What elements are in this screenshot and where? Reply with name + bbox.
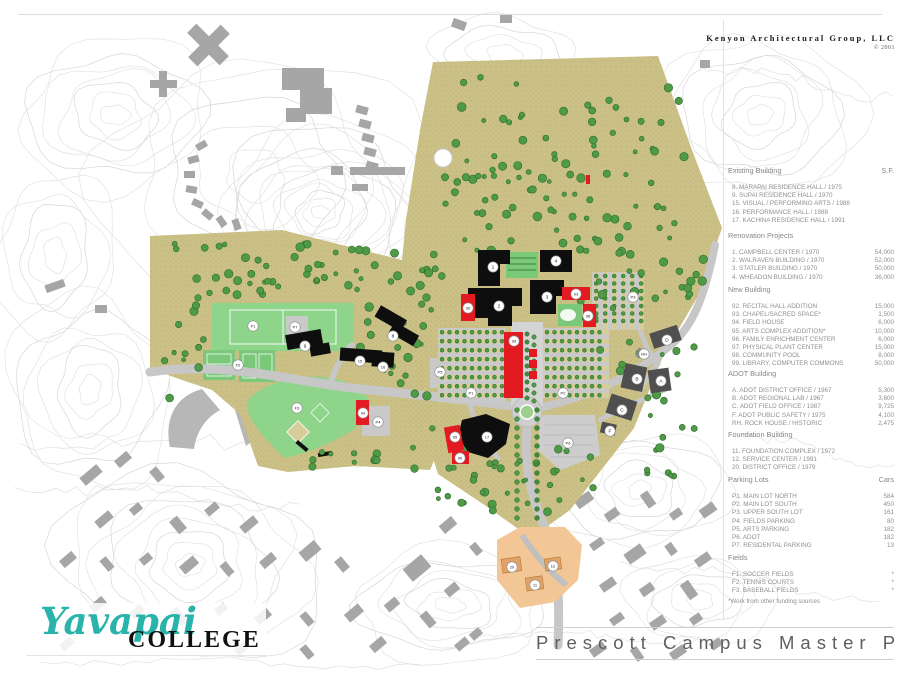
item-label: P2. MAIN LOT SOUTH [728, 501, 797, 509]
item-value: 4,100 [878, 412, 894, 420]
legend-item: P1. MAIN LOT NORTH584 [728, 493, 894, 501]
contour-line [700, 63, 892, 103]
parking-tree [575, 393, 579, 397]
allee-tree [535, 444, 540, 449]
legend-footnote: *Work from other funding sources [728, 598, 820, 605]
parking-tree [639, 319, 643, 323]
tree [224, 269, 233, 278]
tree [319, 449, 324, 454]
legend-item: F2. TENNIS COURTS* [728, 579, 894, 587]
allee-tree [525, 348, 529, 352]
parking-tree [630, 274, 634, 278]
tree [597, 346, 604, 353]
parking-tree [621, 297, 625, 301]
legend-item: 12. SERVICE CENTER / 1991 [728, 456, 894, 464]
parking-tree [545, 339, 549, 343]
parking-tree [463, 330, 467, 334]
city-building [640, 490, 657, 508]
tree [684, 284, 692, 292]
tree [389, 371, 394, 376]
parking-tree [553, 339, 557, 343]
tree [451, 189, 458, 196]
item-label: 12. SERVICE CENTER / 1991 [728, 456, 817, 464]
parking-tree [603, 282, 607, 286]
parking-tree [612, 319, 616, 323]
tree [639, 136, 644, 141]
contour-line [18, 39, 201, 203]
legend-section-adot: ADOT Building A. ADOT DISTRICT OFFICE / … [728, 369, 894, 428]
parking-tree [545, 366, 549, 370]
tree [182, 351, 188, 357]
contour-line [703, 55, 823, 170]
parking-tree [612, 282, 616, 286]
item-label: 15. VISUAL / PERFORMING ARTS / 1988 [728, 200, 850, 208]
city-building [358, 119, 372, 130]
item-label: F3. BASEBALL FIELDS [728, 587, 799, 595]
parking-tree [603, 319, 607, 323]
parking-tree [470, 348, 474, 352]
parking-tree [630, 312, 634, 316]
tree [430, 251, 437, 258]
legend-item: 94. FIELD HOUSE6,000 [728, 319, 894, 327]
allee-tree [525, 364, 529, 368]
tree [314, 277, 319, 282]
tree [648, 413, 652, 417]
parking-tree [485, 366, 489, 370]
tree [255, 257, 261, 263]
tree [656, 444, 665, 453]
map-label-12: 12 [551, 564, 556, 569]
parking-tree [575, 384, 579, 388]
map-label-1: 1 [492, 265, 495, 271]
title-block: Prescott Campus Master Plan [536, 627, 894, 660]
hill-marker [586, 175, 590, 184]
allee-tree [515, 462, 520, 467]
parking-tree [545, 384, 549, 388]
map-label-94: 94 [361, 411, 366, 416]
roundabout-island [520, 405, 534, 419]
tree [562, 192, 567, 197]
legend-section-header: Renovation Projects [728, 231, 894, 240]
legend-item: P6. ADOT182 [728, 534, 894, 542]
tree [657, 225, 663, 231]
legend-item: B. ADOT REGIONAL LAB / 19673,600 [728, 395, 894, 403]
map-label-P1: P1 [469, 391, 475, 396]
tree [529, 186, 536, 193]
tree [526, 170, 531, 175]
tree [482, 118, 486, 122]
tree [492, 465, 496, 469]
section-title: Foundation Building [728, 430, 793, 439]
city-building [419, 610, 436, 628]
tree [611, 215, 619, 223]
legend-item: P5. ARTS PARKING182 [728, 526, 894, 534]
item-label: F2. TENNIS COURTS [728, 579, 794, 587]
allee-tree [515, 507, 520, 512]
tree [648, 180, 654, 186]
contour-line [57, 345, 121, 438]
parking-tree [553, 357, 557, 361]
city-building [299, 611, 314, 627]
tree [234, 277, 242, 285]
tree [626, 250, 634, 258]
legend-item: 17. KACHINA RESIDENCE HALL / 1991 [728, 217, 894, 225]
tree [296, 243, 305, 252]
tree [691, 344, 698, 351]
tree [559, 239, 567, 247]
tree [407, 287, 415, 295]
amphitheater-wedge [168, 389, 220, 449]
map-label-F2: F2 [236, 363, 241, 368]
contour-line [28, 223, 81, 287]
tree [172, 351, 176, 355]
tree [672, 220, 678, 226]
parking-tree [590, 330, 594, 334]
item-label: 9. SUPAI RESIDENCE HALL / 1970 [728, 192, 832, 200]
parking-tree [575, 339, 579, 343]
tree [419, 301, 425, 307]
tree [482, 197, 488, 203]
tree [460, 79, 467, 86]
parking-tree [612, 312, 616, 316]
allee-tree [515, 435, 520, 440]
tree [423, 392, 432, 401]
legend-section-existing: Existing BuildingS.F. 8. MARAPAI RESIDEN… [728, 166, 894, 225]
parking-tree [590, 357, 594, 361]
parking-tree [612, 289, 616, 293]
allee-tree [515, 453, 520, 458]
tree [482, 174, 486, 178]
allee-tree [525, 340, 529, 344]
parking-tree [630, 282, 634, 286]
tree [478, 74, 484, 80]
tree [533, 212, 542, 221]
parking-tree [560, 375, 564, 379]
tree [216, 243, 222, 249]
parking-tree [560, 357, 564, 361]
tree [675, 372, 681, 378]
allee-tree [535, 471, 540, 476]
allee-tree [535, 507, 540, 512]
item-value: 5,300 [878, 387, 894, 395]
dome-building-1 [331, 166, 343, 175]
city-building [282, 68, 324, 90]
tree [519, 112, 525, 118]
allee-tree [532, 399, 536, 403]
tree [200, 337, 206, 343]
legend-item: P4. FIELDS PARKING80 [728, 518, 894, 526]
item-label: F1. SOCCER FIELDS [728, 571, 794, 579]
legend-section-header: Fields [728, 553, 894, 562]
legend-section-header: Existing BuildingS.F. [728, 166, 894, 175]
city-building [604, 507, 621, 522]
parking-tree [639, 297, 643, 301]
legend-item: 99. LIBRARY, COMPUTER COMMONS50,000 [728, 360, 894, 368]
allee-tree [532, 383, 536, 387]
parking-tree [545, 357, 549, 361]
allee-tree [535, 408, 540, 413]
contour-line [24, 328, 155, 455]
water-tank [434, 149, 452, 167]
tree [525, 501, 530, 506]
parking-tree [448, 393, 452, 397]
parking-tree [448, 375, 452, 379]
contour-line [25, 54, 211, 173]
parking-tree [448, 348, 452, 352]
item-label: 93. CHAPEL/SACRED SPACE* [728, 311, 821, 319]
tree [443, 201, 449, 207]
tree [420, 322, 427, 329]
parking-tree [575, 366, 579, 370]
tree [454, 178, 461, 185]
parking-tree [598, 366, 602, 370]
tree [451, 465, 456, 470]
item-value: 1,500 [878, 311, 894, 319]
item-label: 98. COMMUNITY POOL [728, 352, 800, 360]
tree [465, 159, 469, 163]
tree [429, 307, 434, 312]
city-building [403, 554, 432, 582]
city-building [599, 576, 617, 593]
tree [598, 290, 607, 299]
parking-tree [485, 339, 489, 343]
item-value: 182 [883, 534, 894, 542]
parking-tree [560, 339, 564, 343]
city-building [700, 60, 710, 68]
city-building [187, 155, 199, 165]
tree [192, 302, 199, 309]
parking-tree [598, 393, 602, 397]
allee-tree [535, 489, 540, 494]
tree [248, 270, 255, 277]
tree [555, 468, 560, 473]
parking-tree [568, 339, 572, 343]
parking-tree [590, 375, 594, 379]
tree [514, 162, 522, 170]
parking-tree [448, 366, 452, 370]
tree [519, 136, 527, 144]
tree [517, 175, 522, 180]
tree [505, 491, 509, 495]
parking-tree [500, 384, 504, 388]
parking-tree [594, 289, 598, 293]
parking-tree [463, 384, 467, 388]
legend-item: 11. FOUNDATION COMPLEX / 1972 [728, 448, 894, 456]
parking-tree [440, 357, 444, 361]
tree [351, 451, 357, 457]
contour-line [101, 105, 132, 125]
parking-tree [575, 330, 579, 334]
tree [395, 344, 401, 350]
tree [411, 465, 419, 473]
tree [552, 151, 557, 156]
legend-item: 8. MARAPAI RESIDENCE HALL / 1975 [728, 184, 894, 192]
parking-tree [560, 348, 564, 352]
tree [659, 258, 667, 266]
city-building [639, 582, 656, 597]
tree [574, 235, 581, 242]
yavapai-college-logo: Yavapai COLLEGE [26, 603, 266, 656]
map-label-P3: P3 [631, 295, 637, 300]
tree [329, 452, 333, 456]
tree [304, 271, 311, 278]
parking-tree [639, 304, 643, 308]
parking-tree [553, 366, 557, 370]
legend-item: F. ADOT PUBLIC SAFETY / 19754,100 [728, 412, 894, 420]
parking-tree [568, 384, 572, 388]
legend-section-new: New Building 92. RECITAL HALL ADDITION15… [728, 285, 894, 369]
tree [675, 97, 682, 104]
item-value: 13 [887, 542, 894, 550]
tree [509, 204, 516, 211]
tree [354, 269, 359, 274]
city-building [355, 105, 369, 116]
tree [610, 305, 616, 311]
legend-item: 3. STATLER BUILDING / 197050,000 [728, 265, 894, 273]
tree [645, 395, 651, 401]
allee-tree [535, 453, 540, 458]
city-building [369, 636, 387, 653]
tree [499, 115, 507, 123]
map-label-P2: P2 [561, 391, 567, 396]
tree [610, 130, 616, 136]
tree [182, 358, 186, 362]
tree [613, 104, 619, 110]
map-label-3: 3 [546, 295, 549, 301]
item-value: 6,000 [878, 319, 894, 327]
map-label-P5: P5 [438, 370, 444, 375]
city-building [191, 198, 204, 209]
legend-item: 16. PERFORMANCE HALL / 1988 [728, 209, 894, 217]
tree [355, 246, 363, 254]
tree [404, 353, 413, 362]
parking-tree [553, 330, 557, 334]
tree [265, 278, 271, 284]
tree [538, 174, 546, 182]
map-label-96: 96 [458, 456, 463, 461]
contour-line [611, 474, 666, 507]
map-label-15: 15 [358, 359, 363, 364]
tree [577, 174, 586, 183]
parking-tree [440, 384, 444, 388]
city-building [95, 305, 107, 313]
tree [589, 136, 597, 144]
parking-tree [612, 274, 616, 278]
architect-credit: Kenyon Architectural Group, LLC © 2001 [690, 33, 895, 51]
contour-line [295, 190, 345, 234]
contour-line [747, 104, 774, 125]
city-building [469, 542, 483, 556]
parking-tree [630, 304, 634, 308]
city-building [664, 542, 677, 556]
allee-tree [532, 343, 536, 347]
tree [195, 364, 203, 372]
map-label-98: 98 [586, 314, 591, 319]
tree [388, 279, 394, 285]
tree [423, 294, 431, 302]
allee-tree [525, 396, 529, 400]
tree [587, 454, 594, 461]
parking-tree [545, 393, 549, 397]
copyright: © 2001 [690, 45, 895, 51]
tree [679, 424, 685, 430]
tree [441, 174, 448, 181]
parking-tree [493, 366, 497, 370]
city-building [334, 556, 350, 573]
city-building [298, 540, 321, 562]
parking-tree [493, 393, 497, 397]
map-label-16: 16 [381, 365, 386, 370]
section-title: New Building [728, 285, 771, 294]
tree [668, 236, 672, 240]
contour-line [37, 338, 143, 438]
parking-tree [485, 357, 489, 361]
tree [291, 253, 298, 260]
tree [587, 197, 593, 203]
tree [503, 210, 511, 218]
parking-tree [621, 282, 625, 286]
tree [577, 246, 584, 253]
dome-building-2 [350, 167, 405, 175]
tree [309, 463, 316, 470]
tree [543, 135, 549, 141]
item-value: * [892, 579, 894, 587]
parking-tree [590, 339, 594, 343]
allee-tree [515, 471, 520, 476]
item-label: A. ADOT DISTRICT OFFICE / 1967 [728, 387, 832, 395]
tree [606, 97, 613, 104]
parking-tree [553, 384, 557, 388]
parking-tree [560, 330, 564, 334]
city-building [439, 516, 458, 534]
tree [364, 318, 371, 325]
tree [314, 261, 320, 267]
pool-water [560, 309, 576, 321]
city-building [259, 552, 277, 569]
contour-line [5, 286, 170, 490]
parking-tree [500, 330, 504, 334]
contour-line [79, 374, 101, 405]
tree [419, 268, 424, 273]
tree [655, 203, 661, 209]
parking-tree [493, 348, 497, 352]
contour-line [90, 92, 142, 140]
contour-line [683, 55, 845, 175]
tree [644, 467, 650, 473]
city-building [361, 133, 375, 144]
tree [345, 281, 353, 289]
tree [172, 241, 177, 246]
contour-line [712, 68, 810, 161]
legend-item: 93. CHAPEL/SACRED SPACE*1,500 [728, 311, 894, 319]
tree [397, 380, 404, 387]
parking-tree [568, 366, 572, 370]
item-value: 8,000 [878, 352, 894, 360]
item-label: 96. FAMILY ENRICHMENT CENTER [728, 336, 836, 344]
allee-tree [515, 426, 520, 431]
legend-item: F3. BASEBALL FIELDS* [728, 587, 894, 595]
item-value: * [892, 587, 894, 595]
allee-tree [525, 372, 529, 376]
item-value: 450 [883, 501, 894, 509]
tree [263, 263, 269, 269]
tree [616, 367, 624, 375]
tree [661, 206, 666, 211]
allee-tree [535, 498, 540, 503]
parking-tree [568, 375, 572, 379]
city-building [689, 612, 703, 625]
parking-tree [463, 348, 467, 352]
